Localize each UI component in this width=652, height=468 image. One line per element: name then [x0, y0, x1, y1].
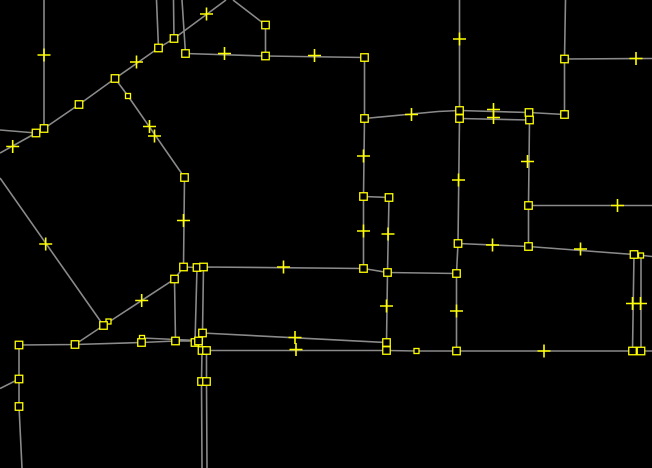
- node-marker[interactable]: [138, 339, 146, 347]
- node-marker[interactable]: [383, 347, 391, 355]
- small-node-marker[interactable]: [414, 349, 419, 354]
- node-marker[interactable]: [203, 347, 211, 355]
- node-marker[interactable]: [525, 109, 533, 117]
- way-line[interactable]: [174, 0, 175, 39]
- node-marker[interactable]: [71, 341, 79, 349]
- node-marker[interactable]: [262, 52, 270, 60]
- node-marker[interactable]: [75, 101, 83, 109]
- node-marker[interactable]: [203, 378, 211, 386]
- node-marker[interactable]: [561, 55, 569, 63]
- way-line[interactable]: [142, 338, 199, 341]
- node-marker[interactable]: [385, 194, 393, 202]
- virtual-node-marker[interactable]: [218, 47, 231, 60]
- node-marker[interactable]: [456, 115, 464, 123]
- virtual-node-marker[interactable]: [290, 343, 303, 356]
- node-marker[interactable]: [361, 54, 369, 62]
- virtual-node-marker[interactable]: [277, 261, 290, 274]
- virtual-node-marker[interactable]: [289, 331, 302, 344]
- node-marker[interactable]: [456, 107, 464, 115]
- virtual-node-marker[interactable]: [382, 228, 395, 241]
- node-marker[interactable]: [525, 243, 533, 251]
- node-marker[interactable]: [384, 269, 392, 277]
- node-marker[interactable]: [15, 341, 23, 349]
- node-marker[interactable]: [155, 44, 163, 52]
- virtual-node-marker[interactable]: [177, 214, 190, 227]
- virtual-node-marker[interactable]: [486, 239, 499, 252]
- node-marker[interactable]: [360, 193, 368, 201]
- node-marker[interactable]: [181, 174, 189, 182]
- node-marker[interactable]: [630, 251, 638, 259]
- node-marker[interactable]: [182, 50, 190, 58]
- way-line[interactable]: [233, 0, 266, 56]
- way-line[interactable]: [195, 268, 197, 343]
- virtual-node-marker[interactable]: [611, 199, 624, 212]
- node-marker[interactable]: [453, 270, 461, 278]
- virtual-node-marker[interactable]: [405, 108, 418, 121]
- virtual-node-marker[interactable]: [450, 305, 463, 318]
- way-line[interactable]: [184, 267, 457, 274]
- node-marker[interactable]: [454, 240, 462, 248]
- editor-viewport: [0, 0, 652, 468]
- node-marker[interactable]: [383, 339, 391, 347]
- node-marker[interactable]: [561, 111, 569, 119]
- node-marker[interactable]: [195, 337, 203, 345]
- node-marker[interactable]: [526, 116, 534, 124]
- node-marker[interactable]: [199, 329, 207, 337]
- node-marker[interactable]: [453, 347, 461, 355]
- virtual-node-marker[interactable]: [308, 49, 321, 62]
- node-marker[interactable]: [100, 322, 108, 330]
- virtual-node-marker[interactable]: [574, 243, 587, 256]
- node-marker[interactable]: [32, 129, 40, 137]
- node-marker[interactable]: [360, 265, 368, 273]
- node-marker[interactable]: [171, 275, 179, 283]
- node-marker[interactable]: [40, 125, 48, 133]
- virtual-node-marker[interactable]: [538, 345, 551, 358]
- way-line[interactable]: [182, 0, 365, 58]
- virtual-node-marker[interactable]: [6, 140, 19, 153]
- node-marker[interactable]: [629, 347, 637, 355]
- way-line[interactable]: [175, 279, 176, 341]
- node-marker[interactable]: [637, 347, 645, 355]
- way-line[interactable]: [0, 178, 104, 326]
- small-node-marker[interactable]: [639, 253, 644, 258]
- node-marker[interactable]: [15, 375, 23, 383]
- virtual-node-marker[interactable]: [634, 297, 647, 310]
- way-line[interactable]: [0, 130, 36, 133]
- node-marker[interactable]: [361, 115, 369, 123]
- virtual-node-marker[interactable]: [630, 52, 643, 65]
- map-canvas[interactable]: [0, 0, 652, 468]
- virtual-node-marker[interactable]: [521, 155, 534, 168]
- node-marker[interactable]: [525, 202, 533, 210]
- way-line[interactable]: [115, 79, 185, 268]
- virtual-node-marker[interactable]: [135, 294, 148, 307]
- way-line[interactable]: [19, 326, 104, 468]
- node-marker[interactable]: [170, 35, 178, 43]
- node-marker[interactable]: [172, 337, 180, 345]
- way-line[interactable]: [157, 0, 159, 48]
- virtual-node-marker[interactable]: [357, 150, 370, 163]
- way-line[interactable]: [202, 267, 204, 468]
- node-marker[interactable]: [111, 75, 119, 83]
- node-marker[interactable]: [200, 263, 208, 271]
- way-line[interactable]: [75, 341, 199, 345]
- node-marker[interactable]: [180, 263, 188, 271]
- virtual-node-marker[interactable]: [357, 225, 370, 238]
- virtual-node-marker[interactable]: [453, 33, 466, 46]
- virtual-node-marker[interactable]: [452, 174, 465, 187]
- way-line[interactable]: [529, 120, 530, 247]
- small-node-marker[interactable]: [126, 94, 131, 99]
- way-line[interactable]: [207, 351, 208, 468]
- way-line[interactable]: [202, 351, 652, 352]
- virtual-node-marker[interactable]: [487, 111, 500, 124]
- way-line[interactable]: [460, 119, 530, 121]
- way-line[interactable]: [365, 111, 565, 119]
- virtual-node-marker[interactable]: [380, 300, 393, 313]
- node-marker[interactable]: [262, 21, 270, 29]
- node-marker[interactable]: [15, 403, 23, 411]
- virtual-node-marker[interactable]: [38, 49, 51, 62]
